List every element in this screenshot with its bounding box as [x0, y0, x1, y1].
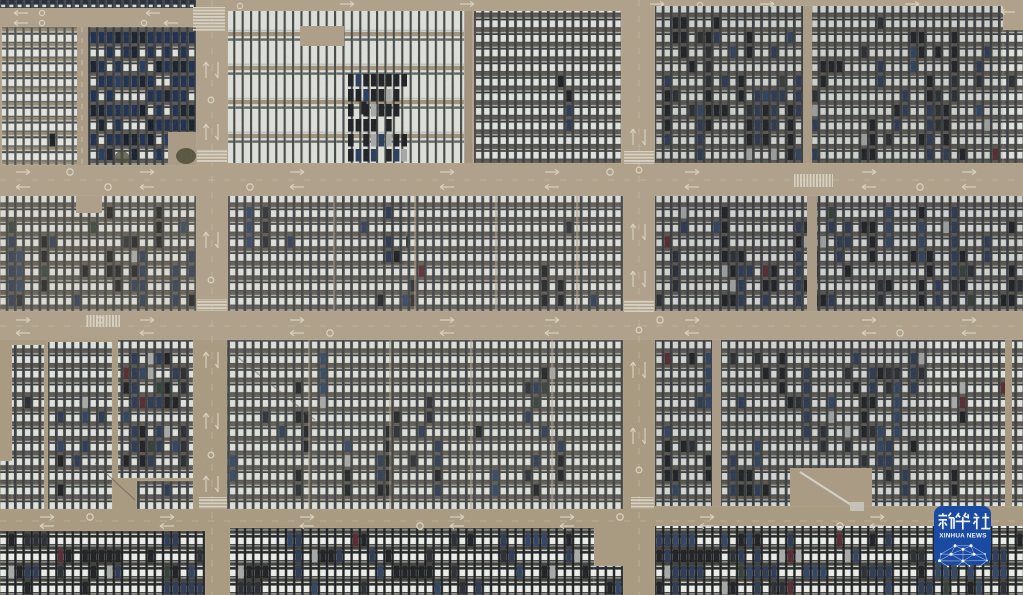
svg-text:XINHUA NEWS: XINHUA NEWS: [939, 533, 987, 540]
